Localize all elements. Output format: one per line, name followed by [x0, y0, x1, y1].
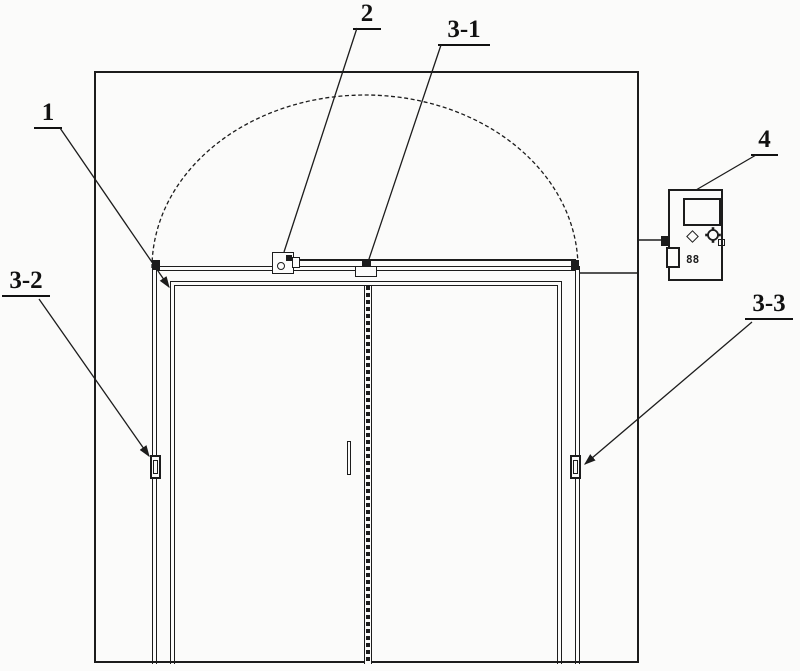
aux-square	[718, 239, 725, 246]
callout-label-1: 1	[34, 100, 62, 129]
drive-belt-line	[294, 259, 576, 261]
left-guide-sensor-inner	[153, 460, 158, 474]
belt-clamp-box	[355, 266, 377, 277]
callout-label-3-1: 3-1	[438, 17, 490, 46]
callout-label-2: 2	[353, 1, 381, 30]
drive-unit-roller-icon	[277, 262, 285, 270]
leader-line-4	[696, 155, 756, 190]
left-pulley-block	[152, 260, 160, 270]
drive-unit-side-tab	[292, 257, 300, 268]
door-handle	[347, 441, 351, 475]
controller-side-box	[666, 247, 680, 268]
center-seam-links	[366, 286, 370, 664]
display-screen	[683, 198, 721, 226]
wire-connector-block	[661, 236, 670, 246]
counter-display: 88	[686, 253, 699, 266]
callout-label-3-2: 3-2	[2, 268, 50, 297]
drive-unit-box	[272, 252, 294, 274]
right-guide-sensor-inner	[573, 460, 578, 474]
belt-clamp-tab	[362, 261, 371, 267]
right-guide-sensor	[570, 455, 581, 479]
figure-canvas: 88 1 2 3-1 3-2 3-3 4	[0, 0, 800, 671]
diamond-indicator-icon	[686, 230, 699, 243]
center-seam-belt	[364, 286, 372, 664]
callout-label-4: 4	[751, 127, 778, 156]
right-pulley-block	[571, 260, 579, 270]
left-guide-sensor	[150, 455, 161, 479]
callout-label-3-3: 3-3	[745, 291, 793, 320]
